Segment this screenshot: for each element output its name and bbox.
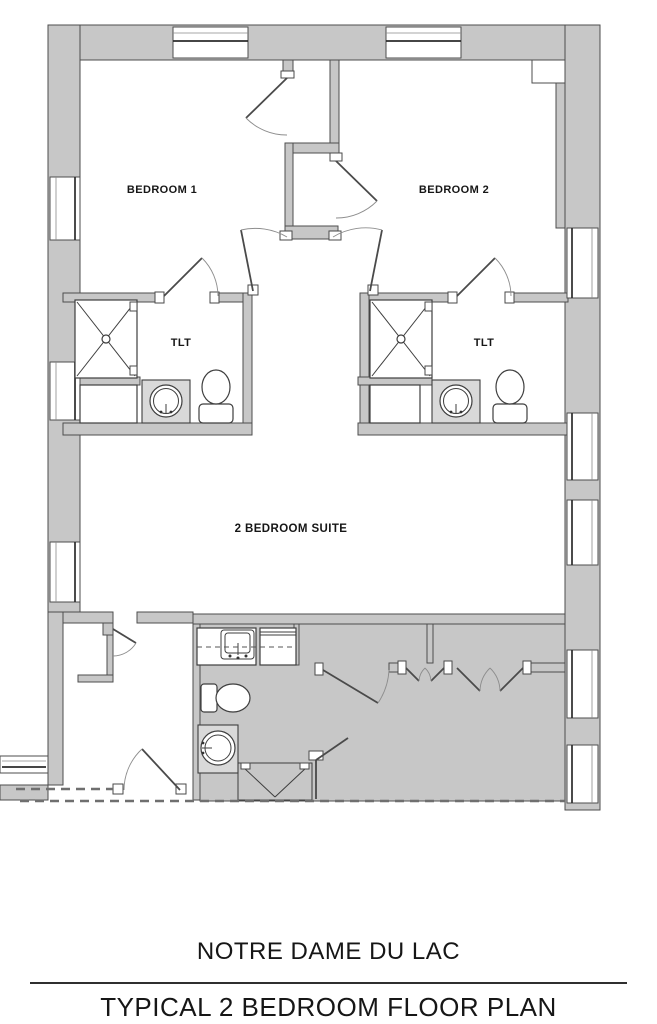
door-swing: [370, 230, 382, 291]
window: [567, 500, 598, 565]
door-swing: [457, 258, 495, 296]
range-counter: [260, 628, 296, 665]
room-label-bedroom-2: BEDROOM 2: [419, 184, 489, 196]
shower-icon: [75, 300, 137, 378]
room-label-suite: 2 BEDROOM SUITE: [235, 523, 348, 535]
window: [173, 27, 248, 58]
window: [0, 756, 48, 773]
floor-plan-sheet: BEDROOM 1 BEDROOM 2 TLT TLT 2 BEDROOM SU…: [0, 0, 657, 1024]
wall-left-lower: [48, 612, 63, 785]
closet: [80, 385, 137, 423]
window: [567, 228, 598, 298]
wall-bedroom2-right: [556, 60, 565, 228]
wall-top: [48, 25, 600, 60]
shower-icon: [370, 300, 432, 378]
bathroom-2-fixtures: [370, 300, 527, 423]
door-swing: [241, 230, 253, 291]
door-swing: [336, 161, 377, 201]
vanity-sink-icon: [432, 380, 480, 423]
door-swing: [113, 629, 136, 643]
vanity-sink-icon: [142, 380, 190, 423]
corner-wall-block: [0, 785, 48, 800]
floor-plan-drawing: BEDROOM 1 BEDROOM 2 TLT TLT 2 BEDROOM SU…: [0, 0, 657, 1024]
toilet-icon: [201, 684, 250, 712]
door-swing: [142, 749, 180, 790]
toilet-icon: [493, 370, 527, 423]
window: [567, 745, 598, 803]
room-label-toilet-1: TLT: [171, 337, 192, 349]
toilet-icon: [199, 370, 233, 423]
sheet-title: TYPICAL 2 BEDROOM FLOOR PLAN: [0, 992, 657, 1023]
window: [50, 177, 80, 240]
room-label-bedroom-1: BEDROOM 1: [127, 184, 197, 196]
window: [567, 650, 598, 718]
room-label-toilet-2: TLT: [474, 337, 495, 349]
window: [567, 413, 598, 480]
door-swing: [164, 258, 202, 296]
project-title: NOTRE DAME DU LAC: [0, 938, 657, 966]
window: [50, 542, 80, 602]
door-swing: [246, 78, 287, 118]
window: [386, 27, 461, 58]
round-sink-icon: [198, 725, 238, 773]
bathroom-1-fixtures: [75, 300, 233, 423]
closet: [370, 385, 420, 423]
wall-notch: [532, 60, 565, 83]
title-divider: [30, 982, 627, 984]
